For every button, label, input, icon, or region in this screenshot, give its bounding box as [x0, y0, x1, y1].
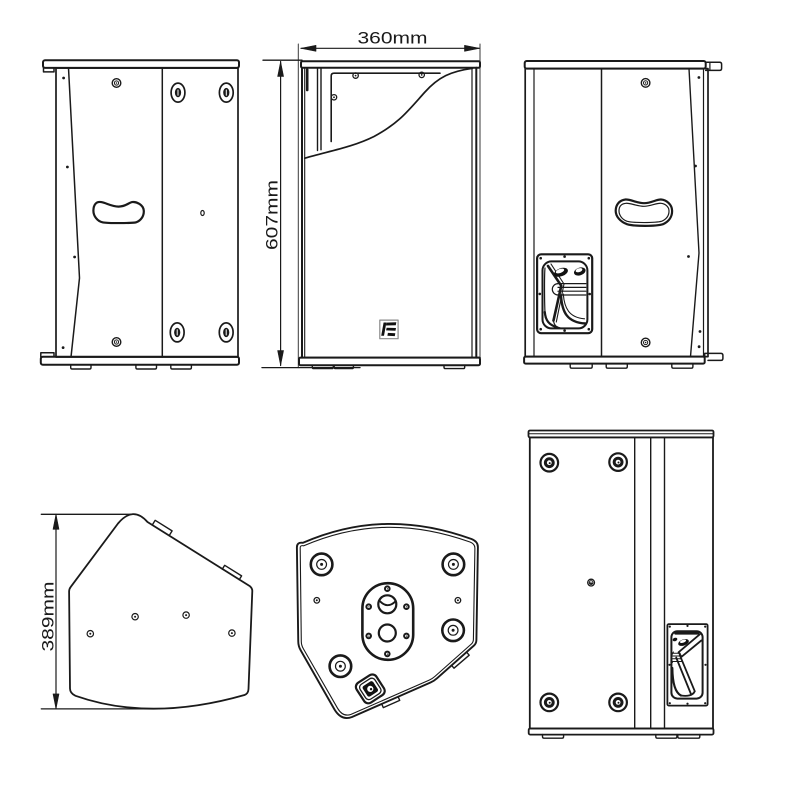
- svg-text:607mm: 607mm: [264, 180, 282, 250]
- svg-text:360mm: 360mm: [358, 30, 428, 48]
- svg-text:389mm: 389mm: [40, 582, 58, 652]
